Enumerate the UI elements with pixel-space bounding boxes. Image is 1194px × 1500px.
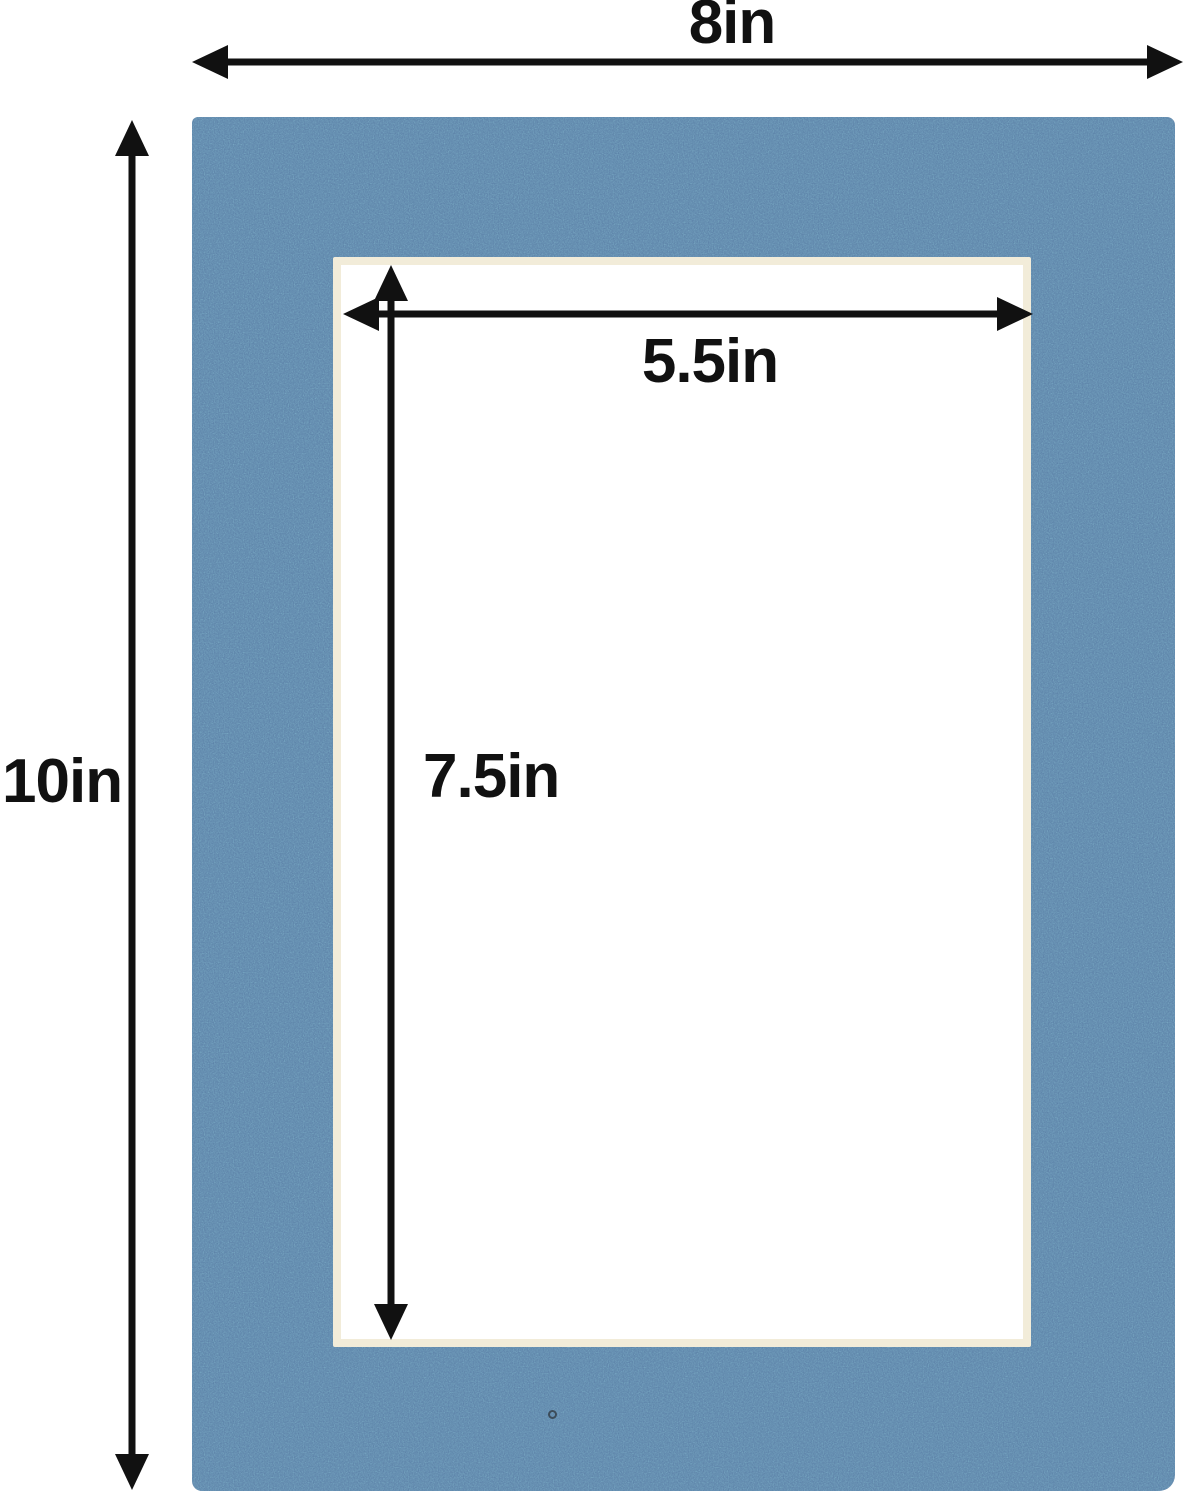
arrowhead-bottom-icon [115,1454,149,1490]
outer-height-label: 10in [2,751,122,813]
arrowhead-right-icon [1147,45,1183,79]
mat-board [192,117,1175,1491]
arrowhead-left-icon [192,45,228,79]
opening-width-label: 5.5in [610,331,810,393]
outer-width-label: 8in [632,0,832,54]
mat-speck [548,1410,557,1419]
opening-height-label: 7.5in [423,746,559,808]
arrowhead-top-icon [115,120,149,156]
product-diagram: 8in 10in 5.5in 7.5in [0,0,1194,1500]
